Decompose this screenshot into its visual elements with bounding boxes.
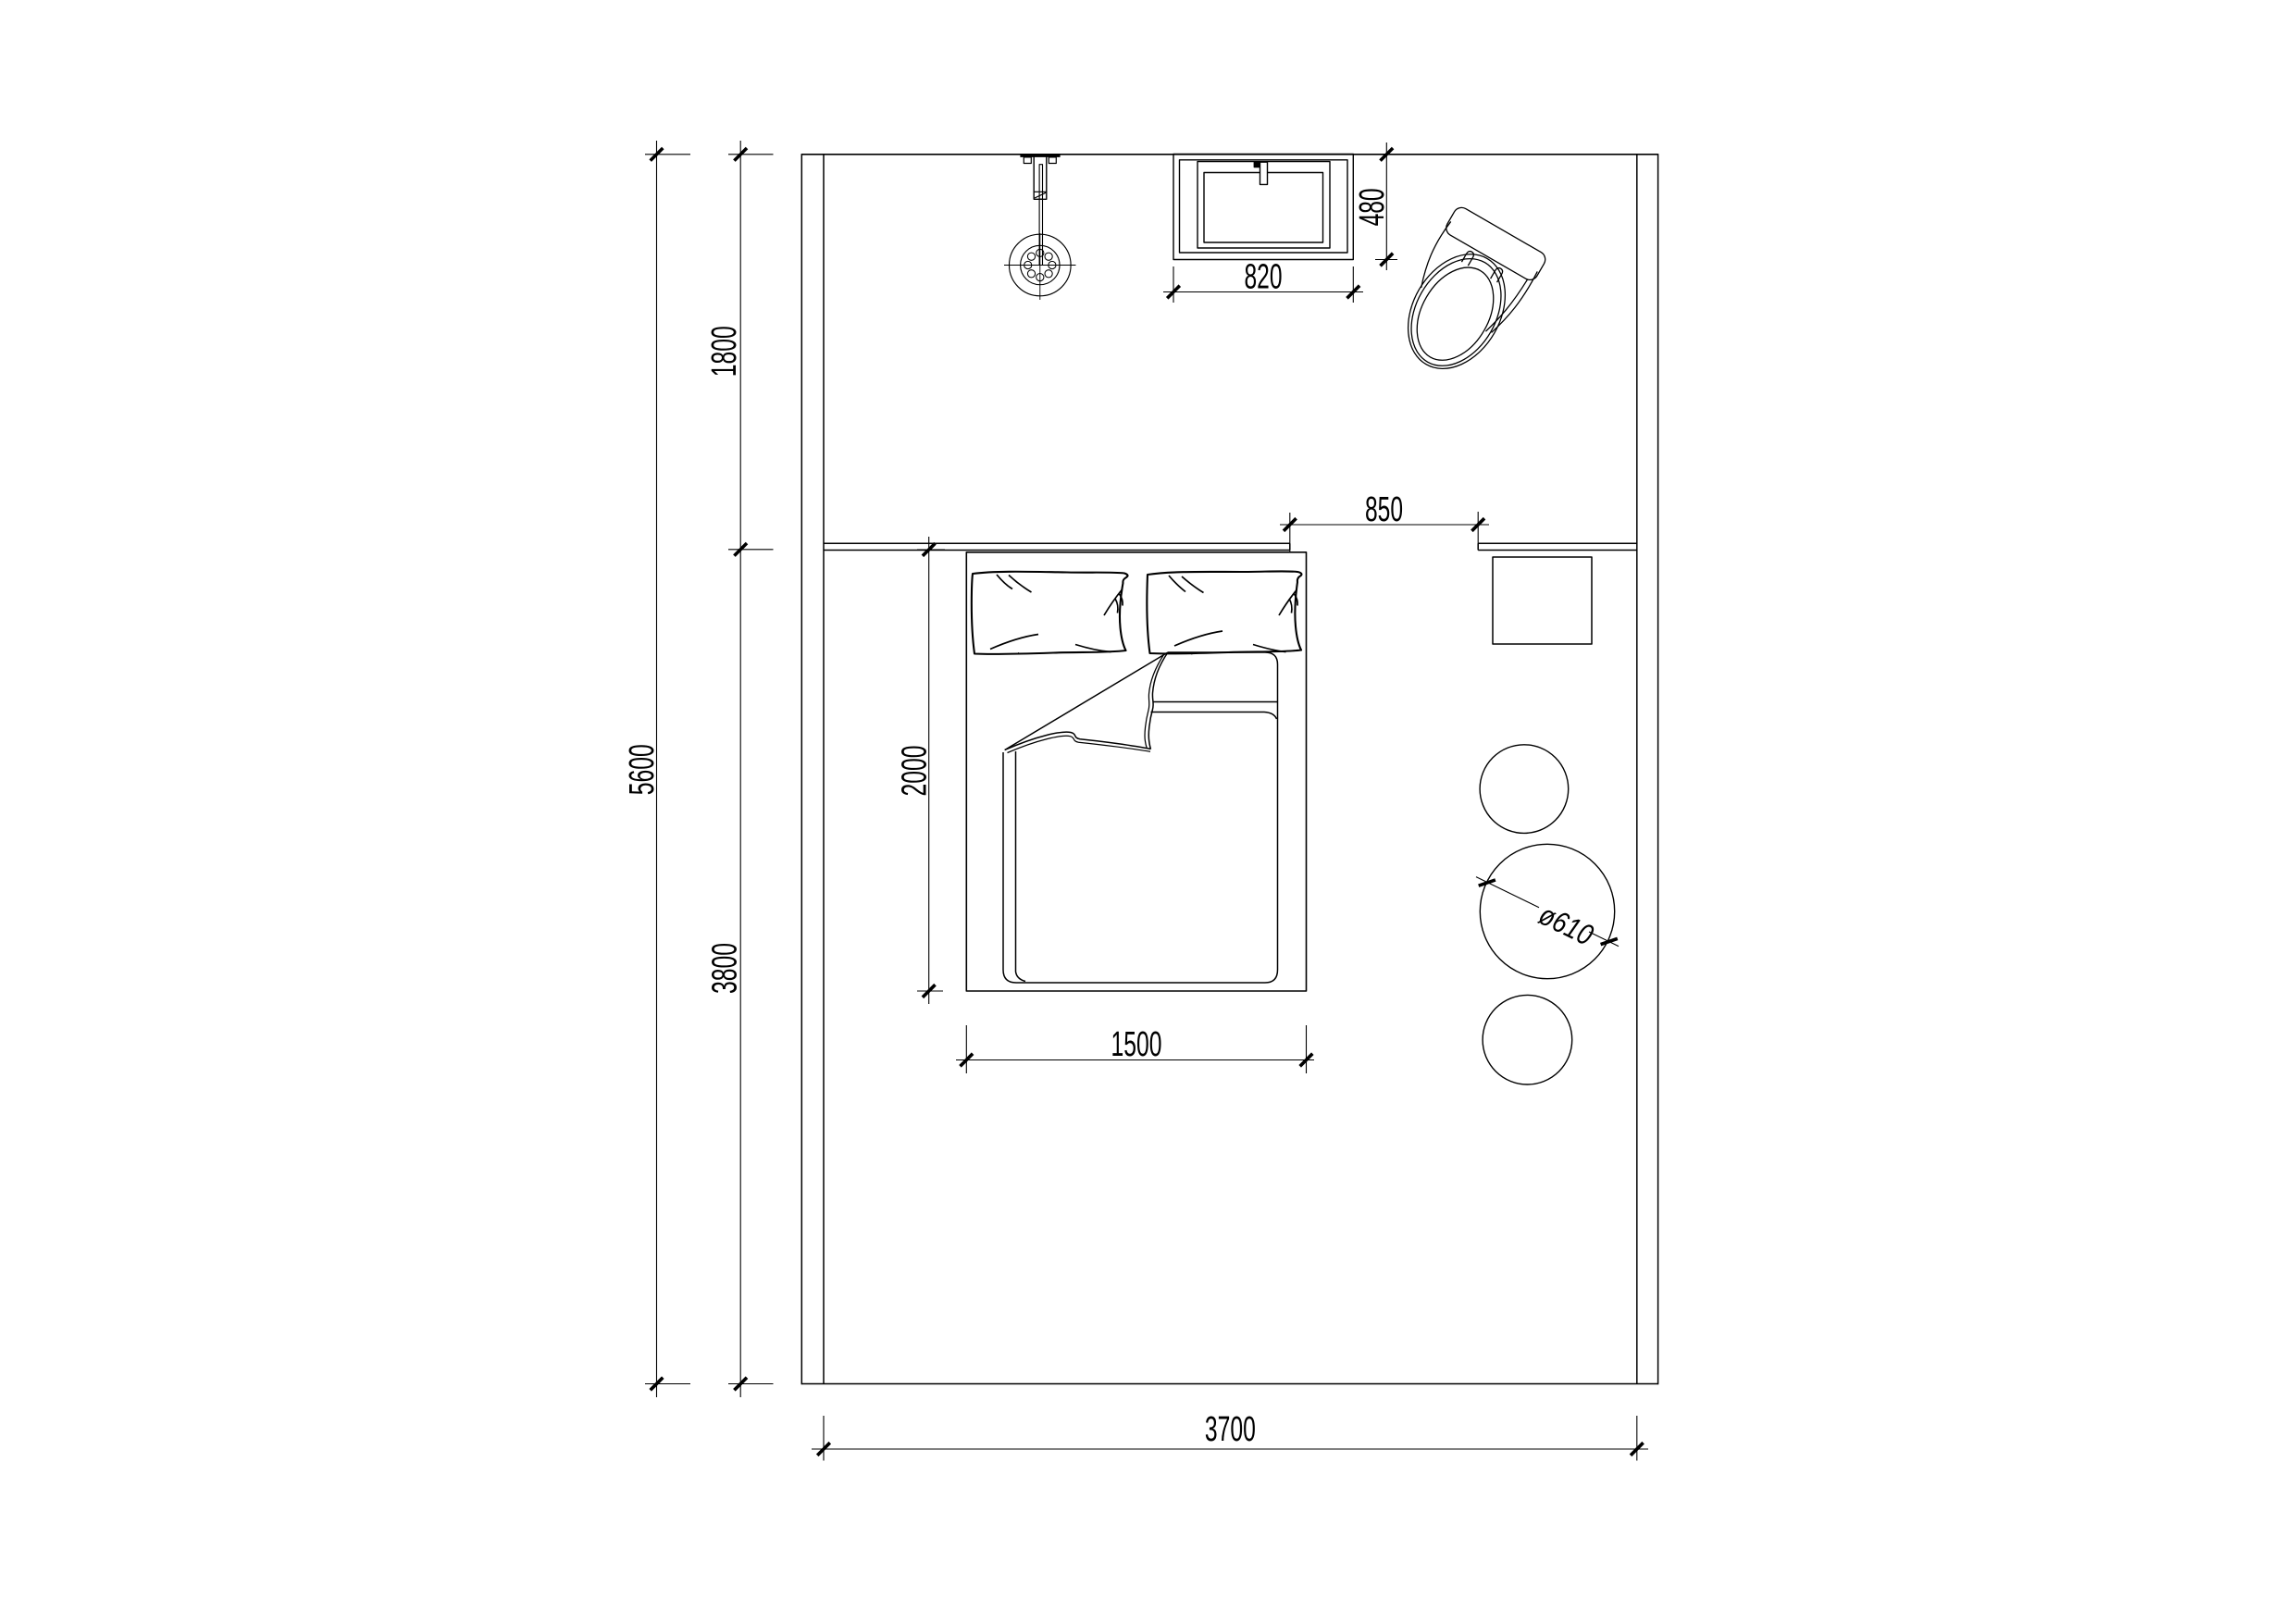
- svg-text:ø610: ø610: [1533, 898, 1598, 952]
- svg-text:1800: 1800: [705, 326, 744, 377]
- svg-text:480: 480: [1353, 188, 1392, 226]
- svg-text:1500: 1500: [1111, 1025, 1162, 1064]
- svg-text:3700: 3700: [1205, 1410, 1256, 1449]
- svg-text:2000: 2000: [895, 746, 934, 797]
- svg-text:5600: 5600: [623, 744, 662, 795]
- svg-text:3800: 3800: [706, 943, 745, 994]
- svg-text:820: 820: [1245, 258, 1283, 297]
- svg-text:850: 850: [1365, 490, 1403, 529]
